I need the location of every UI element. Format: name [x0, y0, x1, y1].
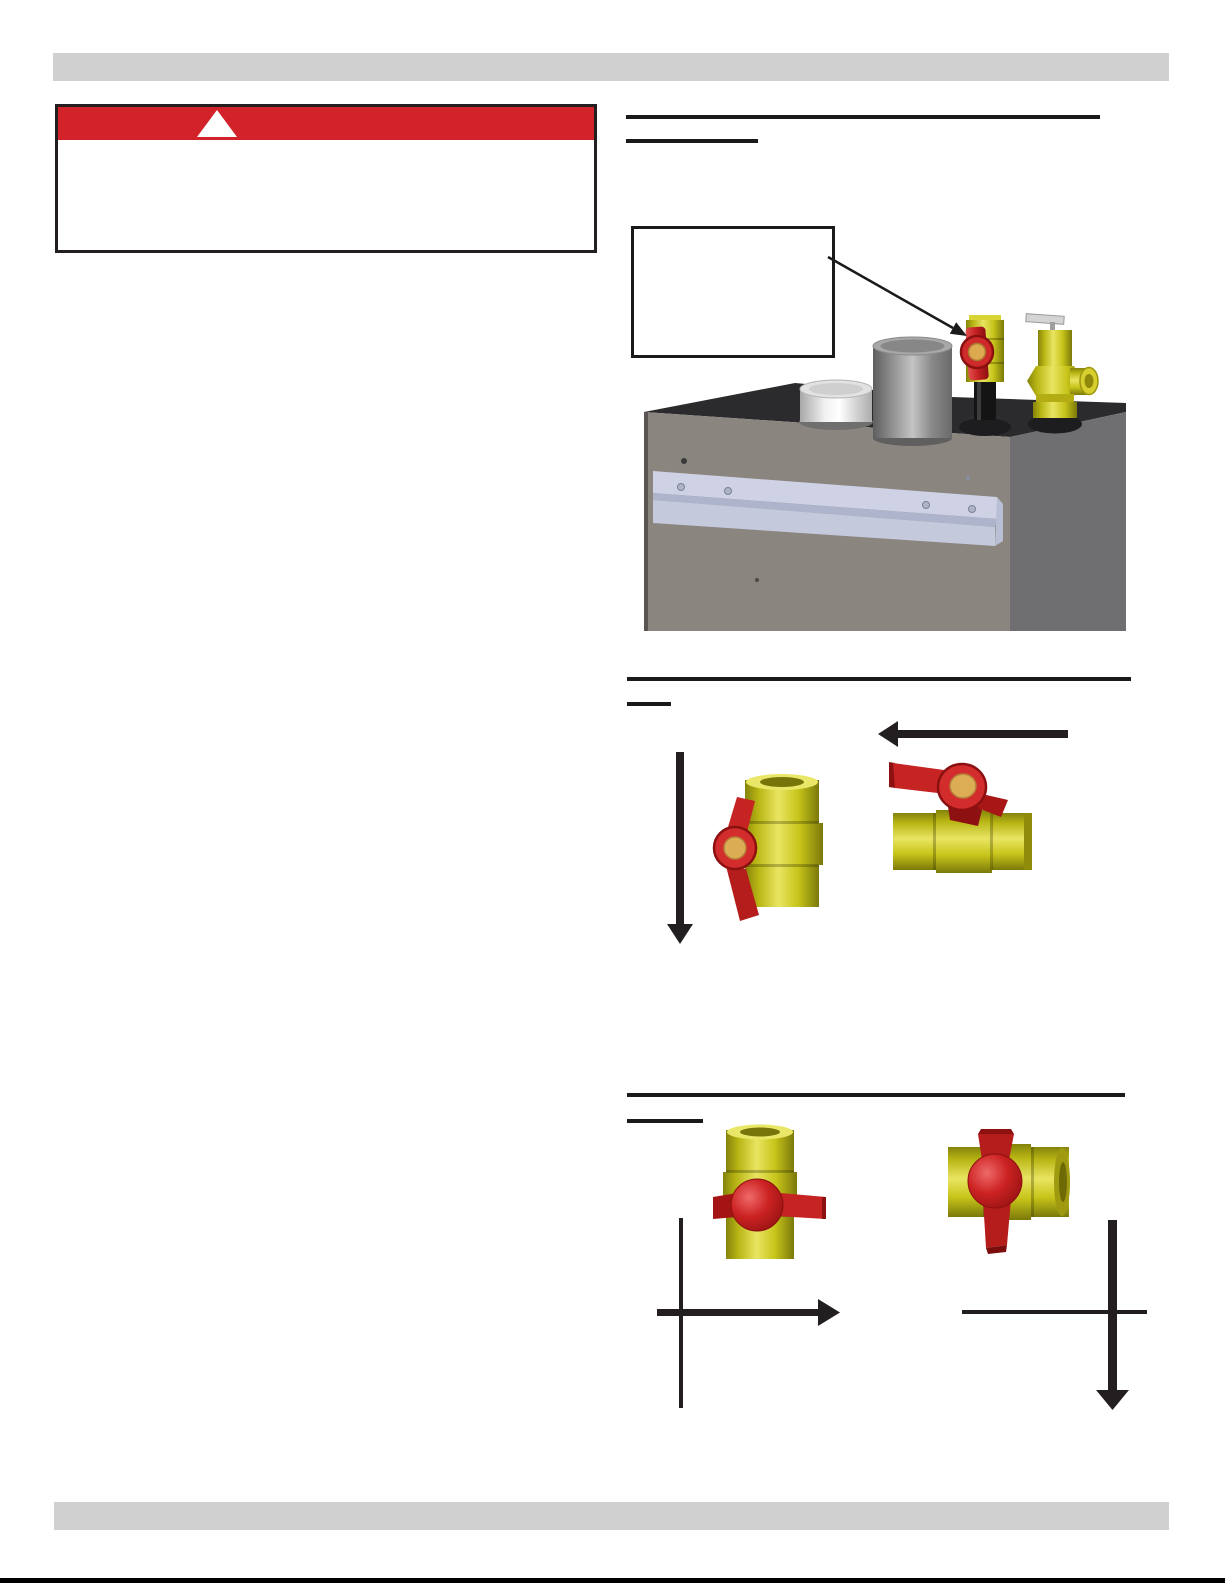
manual-page	[0, 0, 1225, 1585]
callout-arrow	[828, 257, 967, 336]
valve-handle-ball	[731, 1179, 783, 1231]
vent-pipe	[873, 337, 952, 446]
valve-open-horizontal	[889, 762, 1032, 873]
closed-position-figure	[657, 1125, 1147, 1411]
bottom-gray-band	[54, 1502, 1169, 1530]
footer-rule	[0, 1578, 1225, 1583]
cabinet-hole	[966, 476, 970, 480]
valve-closed-horizontal	[948, 1129, 1070, 1254]
open-position-figure	[667, 721, 1068, 944]
flow-arrow-left	[878, 721, 1068, 747]
boiler-figure	[644, 257, 1126, 631]
boiler-left-edge	[644, 412, 648, 631]
figures-layer	[0, 0, 1225, 1585]
bracket-screw	[678, 484, 685, 491]
bracket-screw	[923, 502, 930, 509]
vent-collar	[799, 380, 873, 430]
bracket-screw	[969, 506, 976, 513]
boiler-right-face	[1010, 412, 1126, 631]
valve-open-vertical	[714, 774, 823, 921]
valve-closed-vertical	[713, 1125, 826, 1260]
flow-arrow-down	[667, 752, 693, 944]
relief-valve-lever	[1026, 314, 1064, 325]
cabinet-hole	[755, 578, 759, 582]
bracket-screw	[725, 488, 732, 495]
valve-handle-ball	[968, 1154, 1022, 1208]
cabinet-hole	[681, 458, 687, 464]
